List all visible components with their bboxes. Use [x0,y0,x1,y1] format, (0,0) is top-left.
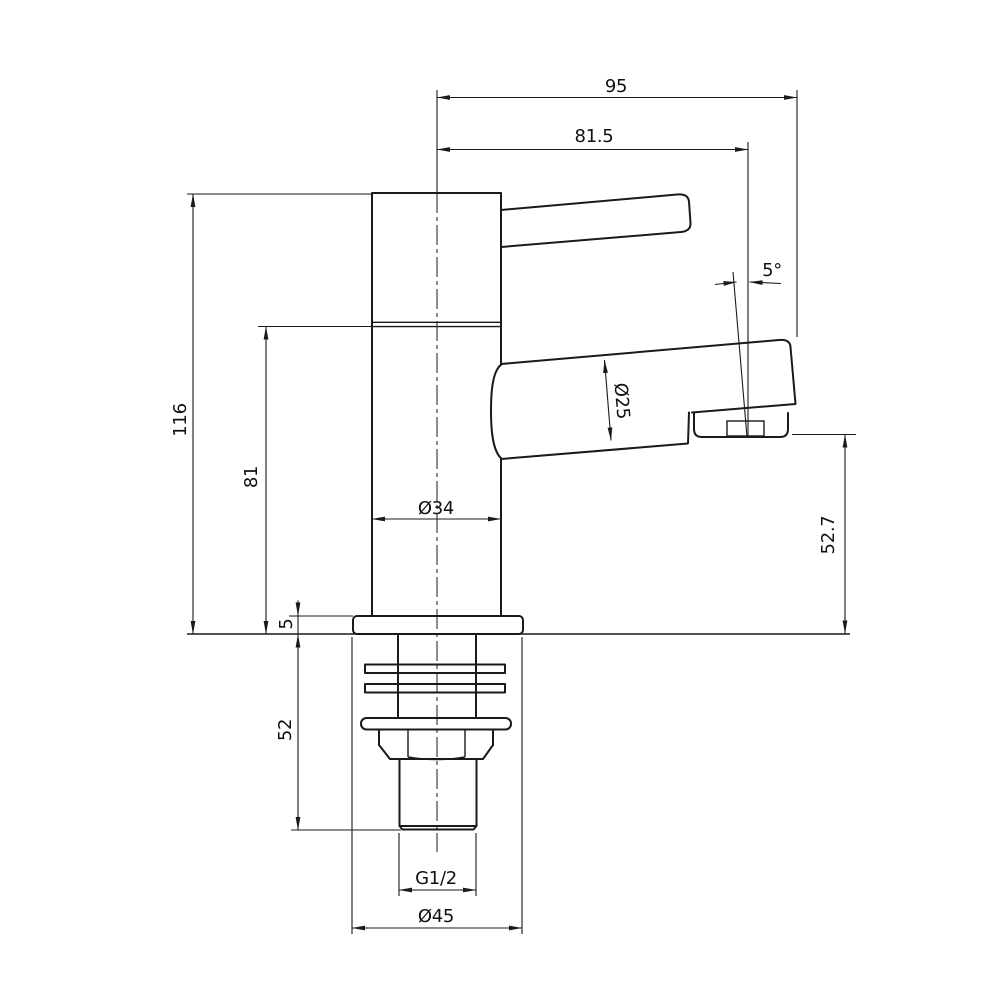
dim-g12-label: G1/2 [415,868,457,889]
faucet-technical-drawing: 95 81.5 5° Ø25 116 81 Ø34 52.7 5 52 G1/2… [0,0,1000,1000]
angle-arrow-right [750,282,782,284]
lock-ring-upper [365,665,505,674]
thread-pipe [400,759,477,830]
aerator-housing [694,413,788,438]
angle-arrow-left [715,282,737,285]
dim-d25 [605,360,612,441]
dim-116-label: 116 [170,403,191,436]
dim-d34-label: Ø34 [418,498,454,519]
hex-nut [379,730,493,760]
dim-52-label: 52 [275,719,296,741]
dim-d25-label: Ø25 [609,382,633,420]
dimension-labels: 95 81.5 5° Ø25 116 81 Ø34 52.7 5 52 G1/2… [170,76,839,927]
dim-52-7-label: 52.7 [818,516,839,555]
washer [361,718,511,730]
spout [491,340,796,459]
lever-handle [501,194,691,247]
lock-ring-lower [365,684,505,693]
angle-reference-line [733,272,747,437]
dim-95-label: 95 [605,76,627,97]
dim-81-5-label: 81.5 [575,126,614,147]
dim-angle-label: 5° [762,260,782,281]
base-flange [353,616,523,634]
dim-d45-label: Ø45 [418,906,454,927]
dim-5-label: 5 [276,618,297,629]
drawing-svg: 95 81.5 5° Ø25 116 81 Ø34 52.7 5 52 G1/2… [0,0,1000,1000]
dimension-lines [187,90,856,934]
dim-81-label: 81 [241,466,262,488]
